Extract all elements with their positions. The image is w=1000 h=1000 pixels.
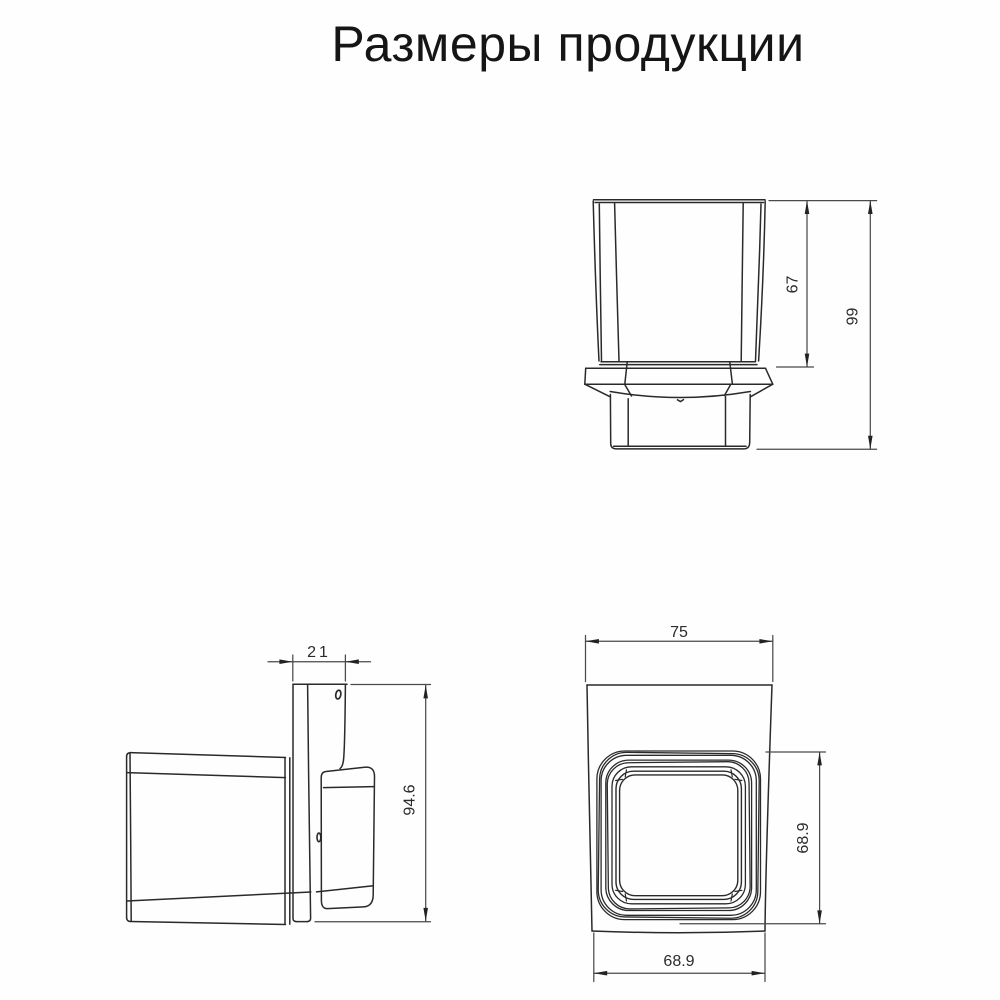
svg-text:Размеры продукции: Размеры продукции (331, 16, 804, 72)
svg-text:67: 67 (785, 276, 802, 294)
svg-text:21: 21 (307, 644, 331, 661)
svg-text:75: 75 (670, 624, 688, 641)
svg-text:94.6: 94.6 (402, 784, 419, 815)
svg-text:68.9: 68.9 (795, 822, 812, 853)
svg-text:68.9: 68.9 (663, 953, 694, 970)
svg-text:99: 99 (845, 308, 862, 326)
